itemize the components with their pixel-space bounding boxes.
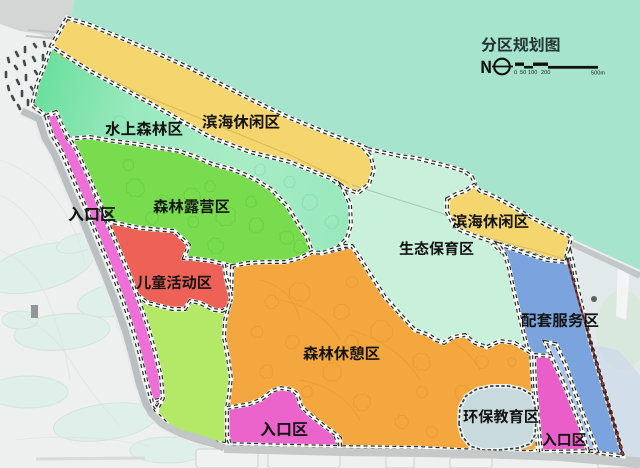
svg-text:100: 100 — [528, 70, 537, 76]
svg-text:0: 0 — [514, 70, 517, 76]
svg-text:200: 200 — [541, 70, 550, 76]
svg-text:50: 50 — [520, 70, 526, 76]
svg-text:500m: 500m — [591, 71, 605, 77]
